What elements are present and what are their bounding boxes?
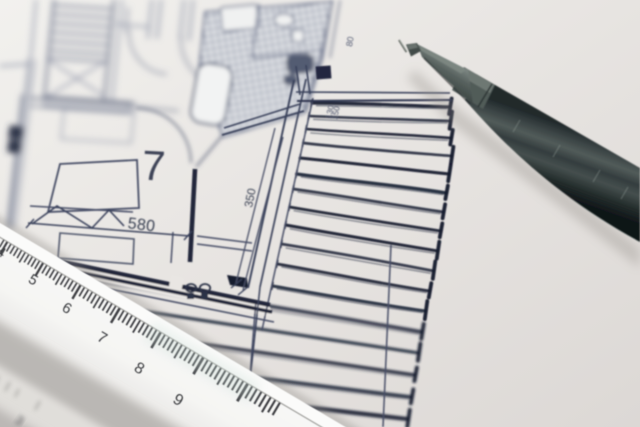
svg-text:7: 7: [141, 142, 167, 190]
svg-text:580: 580: [127, 215, 156, 235]
svg-text:80: 80: [344, 36, 356, 48]
